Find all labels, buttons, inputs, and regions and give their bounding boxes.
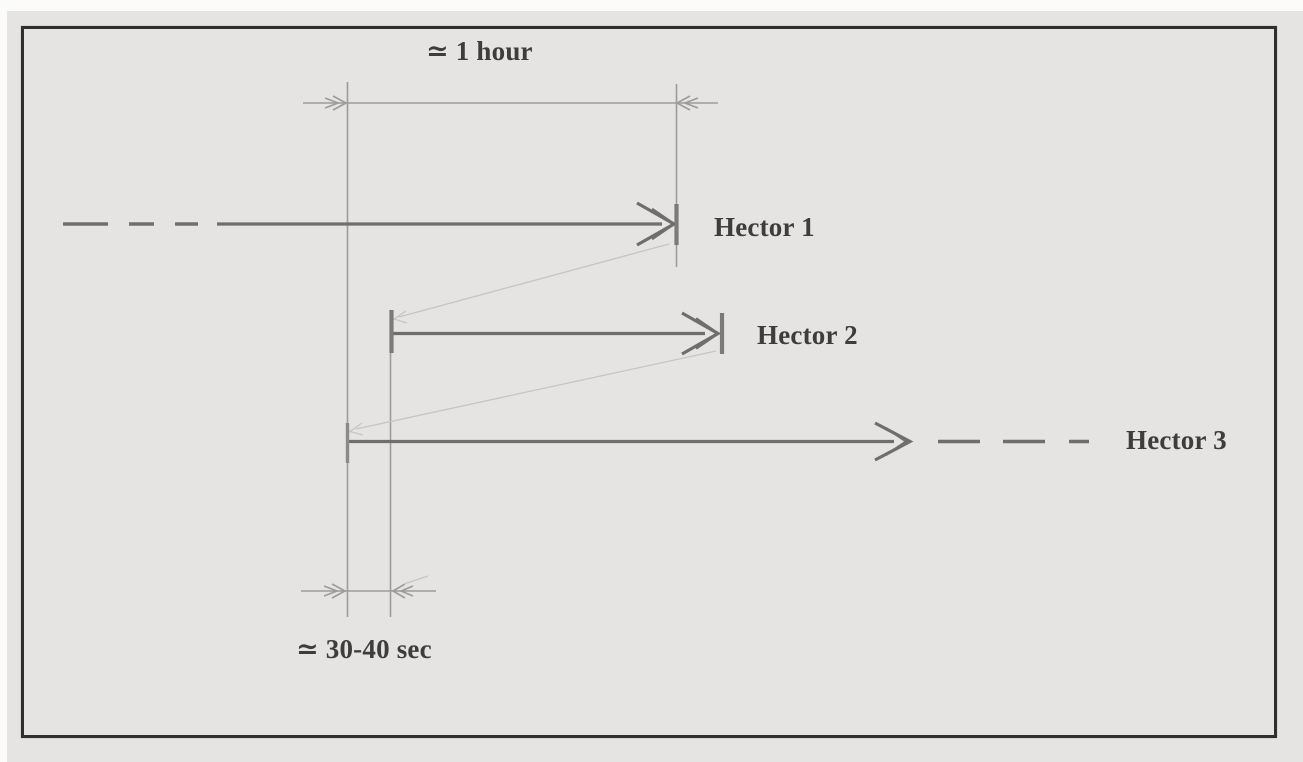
connector-h1-to-h2 xyxy=(399,244,669,317)
timeline-label-hector1: Hector 1 xyxy=(714,214,815,241)
sec-duration-label: ≃ 30-40 sec xyxy=(296,636,432,663)
timeline-arrows xyxy=(63,203,1089,463)
one-hour-duration-label: ≃ 1 hour xyxy=(426,38,533,65)
timeline-hector2 xyxy=(392,310,723,354)
timeline-label-hector3: Hector 3 xyxy=(1126,427,1227,454)
connector-h2-to-h3 xyxy=(356,351,716,429)
sequence-connectors xyxy=(350,244,716,584)
timeline-hector3 xyxy=(348,423,1090,463)
scanned-diagram-page: ≃ 1 hour Hector 1 Hector 2 Hector 3 ≃ 30… xyxy=(0,0,1303,762)
stray-pencil-mark xyxy=(404,576,428,584)
timeline-hector1 xyxy=(63,203,677,245)
timeline-label-hector2: Hector 2 xyxy=(757,322,858,349)
timeline-diagram xyxy=(0,0,1303,762)
thin-reference-lines xyxy=(301,82,718,617)
